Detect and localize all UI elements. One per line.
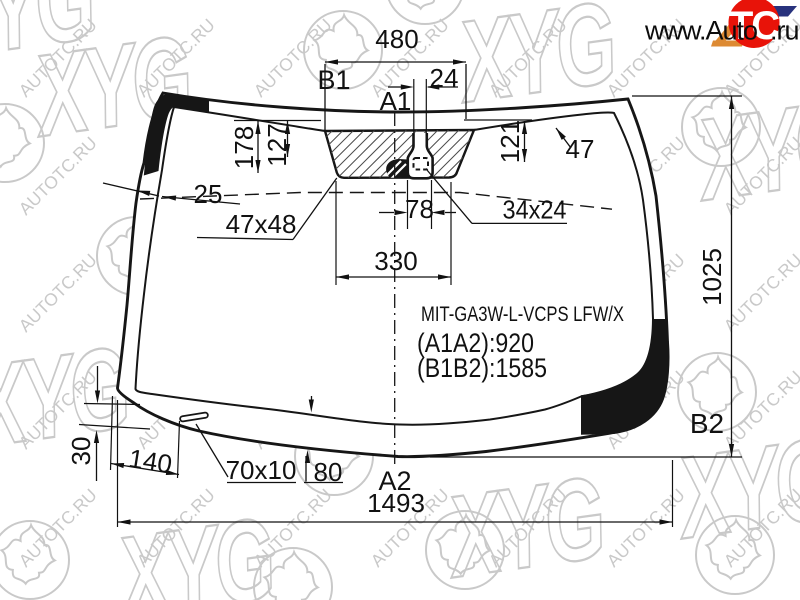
- svg-text:B1: B1: [317, 65, 350, 95]
- svg-text:127: 127: [262, 123, 292, 166]
- svg-text:AUTOTC.RU: AUTOTC.RU: [15, 485, 101, 571]
- svg-text:1025: 1025: [697, 248, 727, 306]
- svg-text:178: 178: [229, 126, 259, 169]
- svg-text:XYG: XYG: [666, 413, 800, 563]
- svg-text:330: 330: [374, 246, 417, 276]
- svg-text:140: 140: [127, 443, 175, 479]
- svg-text:30: 30: [66, 437, 96, 466]
- svg-text:47: 47: [566, 134, 595, 164]
- svg-text:B2: B2: [690, 408, 724, 439]
- svg-text:70x10: 70x10: [226, 455, 297, 485]
- svg-text:78: 78: [405, 194, 434, 224]
- svg-text:(B1B2):1585: (B1B2):1585: [417, 353, 547, 383]
- svg-text:34x24: 34x24: [503, 195, 567, 225]
- svg-text:XYG: XYG: [436, 452, 611, 600]
- svg-text:47x48: 47x48: [226, 209, 297, 239]
- svg-text:25: 25: [194, 179, 223, 209]
- svg-text:.ru: .ru: [770, 16, 799, 46]
- svg-text:24: 24: [430, 63, 459, 93]
- svg-text:480: 480: [375, 24, 418, 54]
- svg-text:AUTOTC.RU: AUTOTC.RU: [15, 250, 101, 336]
- svg-text:121: 121: [495, 120, 525, 163]
- svg-text:MIT-GA3W-L-VCPS LFW/X: MIT-GA3W-L-VCPS LFW/X: [421, 303, 624, 326]
- svg-text:1493: 1493: [367, 488, 425, 518]
- svg-text:XYG: XYG: [686, 75, 800, 225]
- svg-text:AUTOTC.RU: AUTOTC.RU: [603, 485, 689, 571]
- svg-text:A1: A1: [380, 86, 412, 116]
- svg-text:www.Auto: www.Auto: [644, 16, 757, 46]
